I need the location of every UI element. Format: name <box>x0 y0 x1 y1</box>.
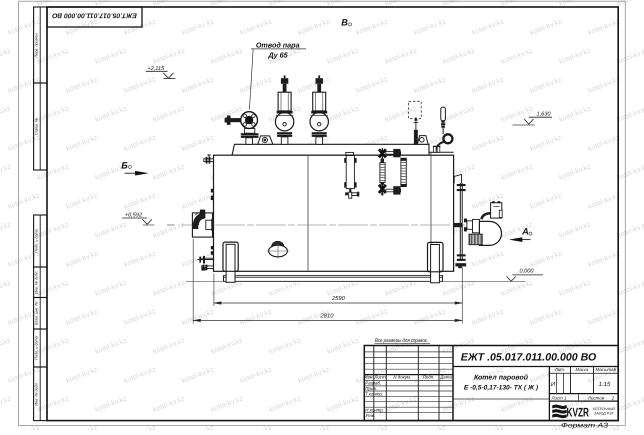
svg-text:Формат А3: Формат А3 <box>561 422 608 429</box>
svg-text:KVZR: KVZR <box>567 406 590 420</box>
svg-text:Лист 1: Лист 1 <box>551 395 568 400</box>
svg-text:Изм.: Изм. <box>364 375 373 380</box>
svg-text:Взам. инв. №: Взам. инв. № <box>35 302 39 325</box>
svg-text:А: А <box>521 227 529 237</box>
svg-text:0,000: 0,000 <box>520 269 535 275</box>
svg-text:Е -0,5-0,17-130- ТХ ( Ж ): Е -0,5-0,17-130- ТХ ( Ж ) <box>464 385 538 392</box>
svg-text:ЗАВОД РЭТ: ЗАВОД РЭТ <box>594 412 615 416</box>
svg-text:Дата: Дата <box>439 375 452 380</box>
svg-text:2810: 2810 <box>320 312 335 319</box>
svg-text:2: 2 <box>611 395 615 400</box>
svg-text:Листов: Листов <box>587 395 605 400</box>
svg-text:КОТЕЛЬНЫЙ: КОТЕЛЬНЫЙ <box>593 406 616 411</box>
svg-text:1:15: 1:15 <box>599 381 611 388</box>
svg-text:Б: Б <box>121 160 128 170</box>
svg-text:И: И <box>551 381 556 388</box>
svg-text:Разраб.: Разраб. <box>365 381 381 386</box>
svg-text:Подп.: Подп. <box>423 375 435 380</box>
svg-text:Подп. и дата: Подп. и дата <box>35 336 39 360</box>
svg-text:ЕЖТ .05.017.011.00.000 ВО: ЕЖТ .05.017.011.00.000 ВО <box>461 352 597 364</box>
svg-text:Н.контр.: Н.контр. <box>365 407 384 412</box>
svg-text:Инв. № подл.: Инв. № подл. <box>35 382 39 406</box>
svg-text:Все размеры для справок.: Все размеры для справок. <box>375 338 428 344</box>
svg-text:Котел паровой: Котел паровой <box>474 374 529 382</box>
svg-text:Лит.: Лит. <box>554 367 565 372</box>
svg-text:2590: 2590 <box>331 295 346 302</box>
svg-text:Отвод пара: Отвод пара <box>256 41 300 50</box>
svg-text:Лист: Лист <box>373 375 386 380</box>
svg-text:ЕЖТ.05.017.011.00.000 ВО: ЕЖТ.05.017.011.00.000 ВО <box>51 12 136 19</box>
svg-text:Пров.: Пров. <box>365 386 377 391</box>
svg-text:Ду 65: Ду 65 <box>267 51 288 60</box>
svg-text:Подп. и дата: Подп. и дата <box>35 229 39 253</box>
svg-text:Перв. примен.: Перв. примен. <box>35 32 39 57</box>
svg-text:В: В <box>341 18 348 28</box>
svg-text:N докум.: N докум. <box>393 375 411 380</box>
svg-text:Т.контр.: Т.контр. <box>365 391 383 396</box>
svg-text:Справ. №: Справ. № <box>35 118 39 135</box>
svg-text:Инв. № дубл.: Инв. № дубл. <box>35 271 39 294</box>
svg-text:Масса: Масса <box>576 367 590 372</box>
svg-text:1,630: 1,630 <box>537 112 552 118</box>
svg-text:Утв.: Утв. <box>365 413 375 418</box>
svg-text:Масштаб: Масштаб <box>596 367 617 372</box>
